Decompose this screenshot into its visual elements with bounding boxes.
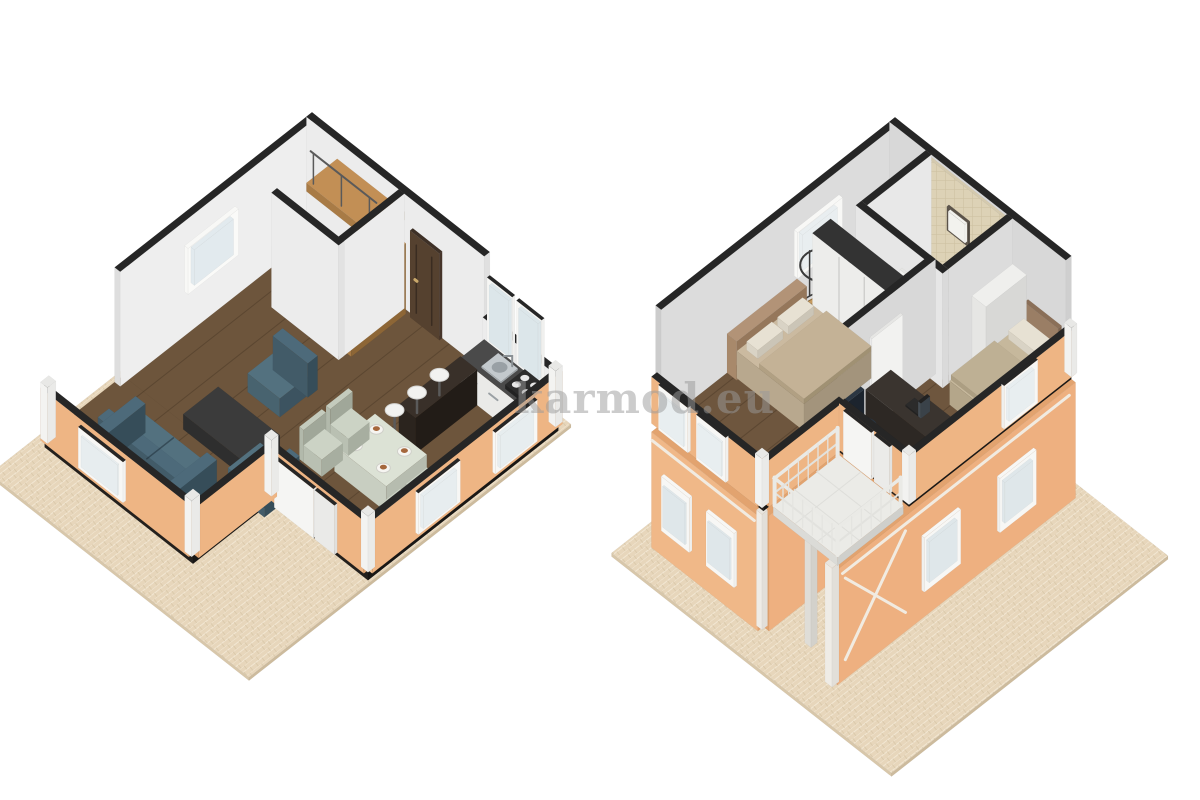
food: [401, 448, 408, 453]
corner-post: [755, 448, 769, 508]
corner-post: [264, 429, 278, 496]
bar-stool: [385, 404, 404, 417]
food: [373, 426, 380, 431]
ground-floor-plan: [0, 112, 571, 680]
bar-stool: [408, 386, 427, 399]
lower-corner-post: [825, 557, 839, 687]
door-knob: [415, 280, 417, 282]
floor-plan-render: karmod.eu: [0, 0, 1200, 800]
watermark: karmod.eu: [514, 374, 775, 423]
corner-post: [361, 505, 375, 572]
upper-floor-plan: [612, 117, 1169, 776]
bar-stool: [430, 368, 449, 381]
corner-post: [185, 489, 200, 557]
sink-basin: [492, 362, 508, 373]
food: [380, 465, 387, 470]
corner-post: [1064, 318, 1077, 377]
corner-post: [40, 376, 55, 444]
corner-post: [902, 445, 916, 505]
lower-corner-post: [756, 506, 767, 630]
